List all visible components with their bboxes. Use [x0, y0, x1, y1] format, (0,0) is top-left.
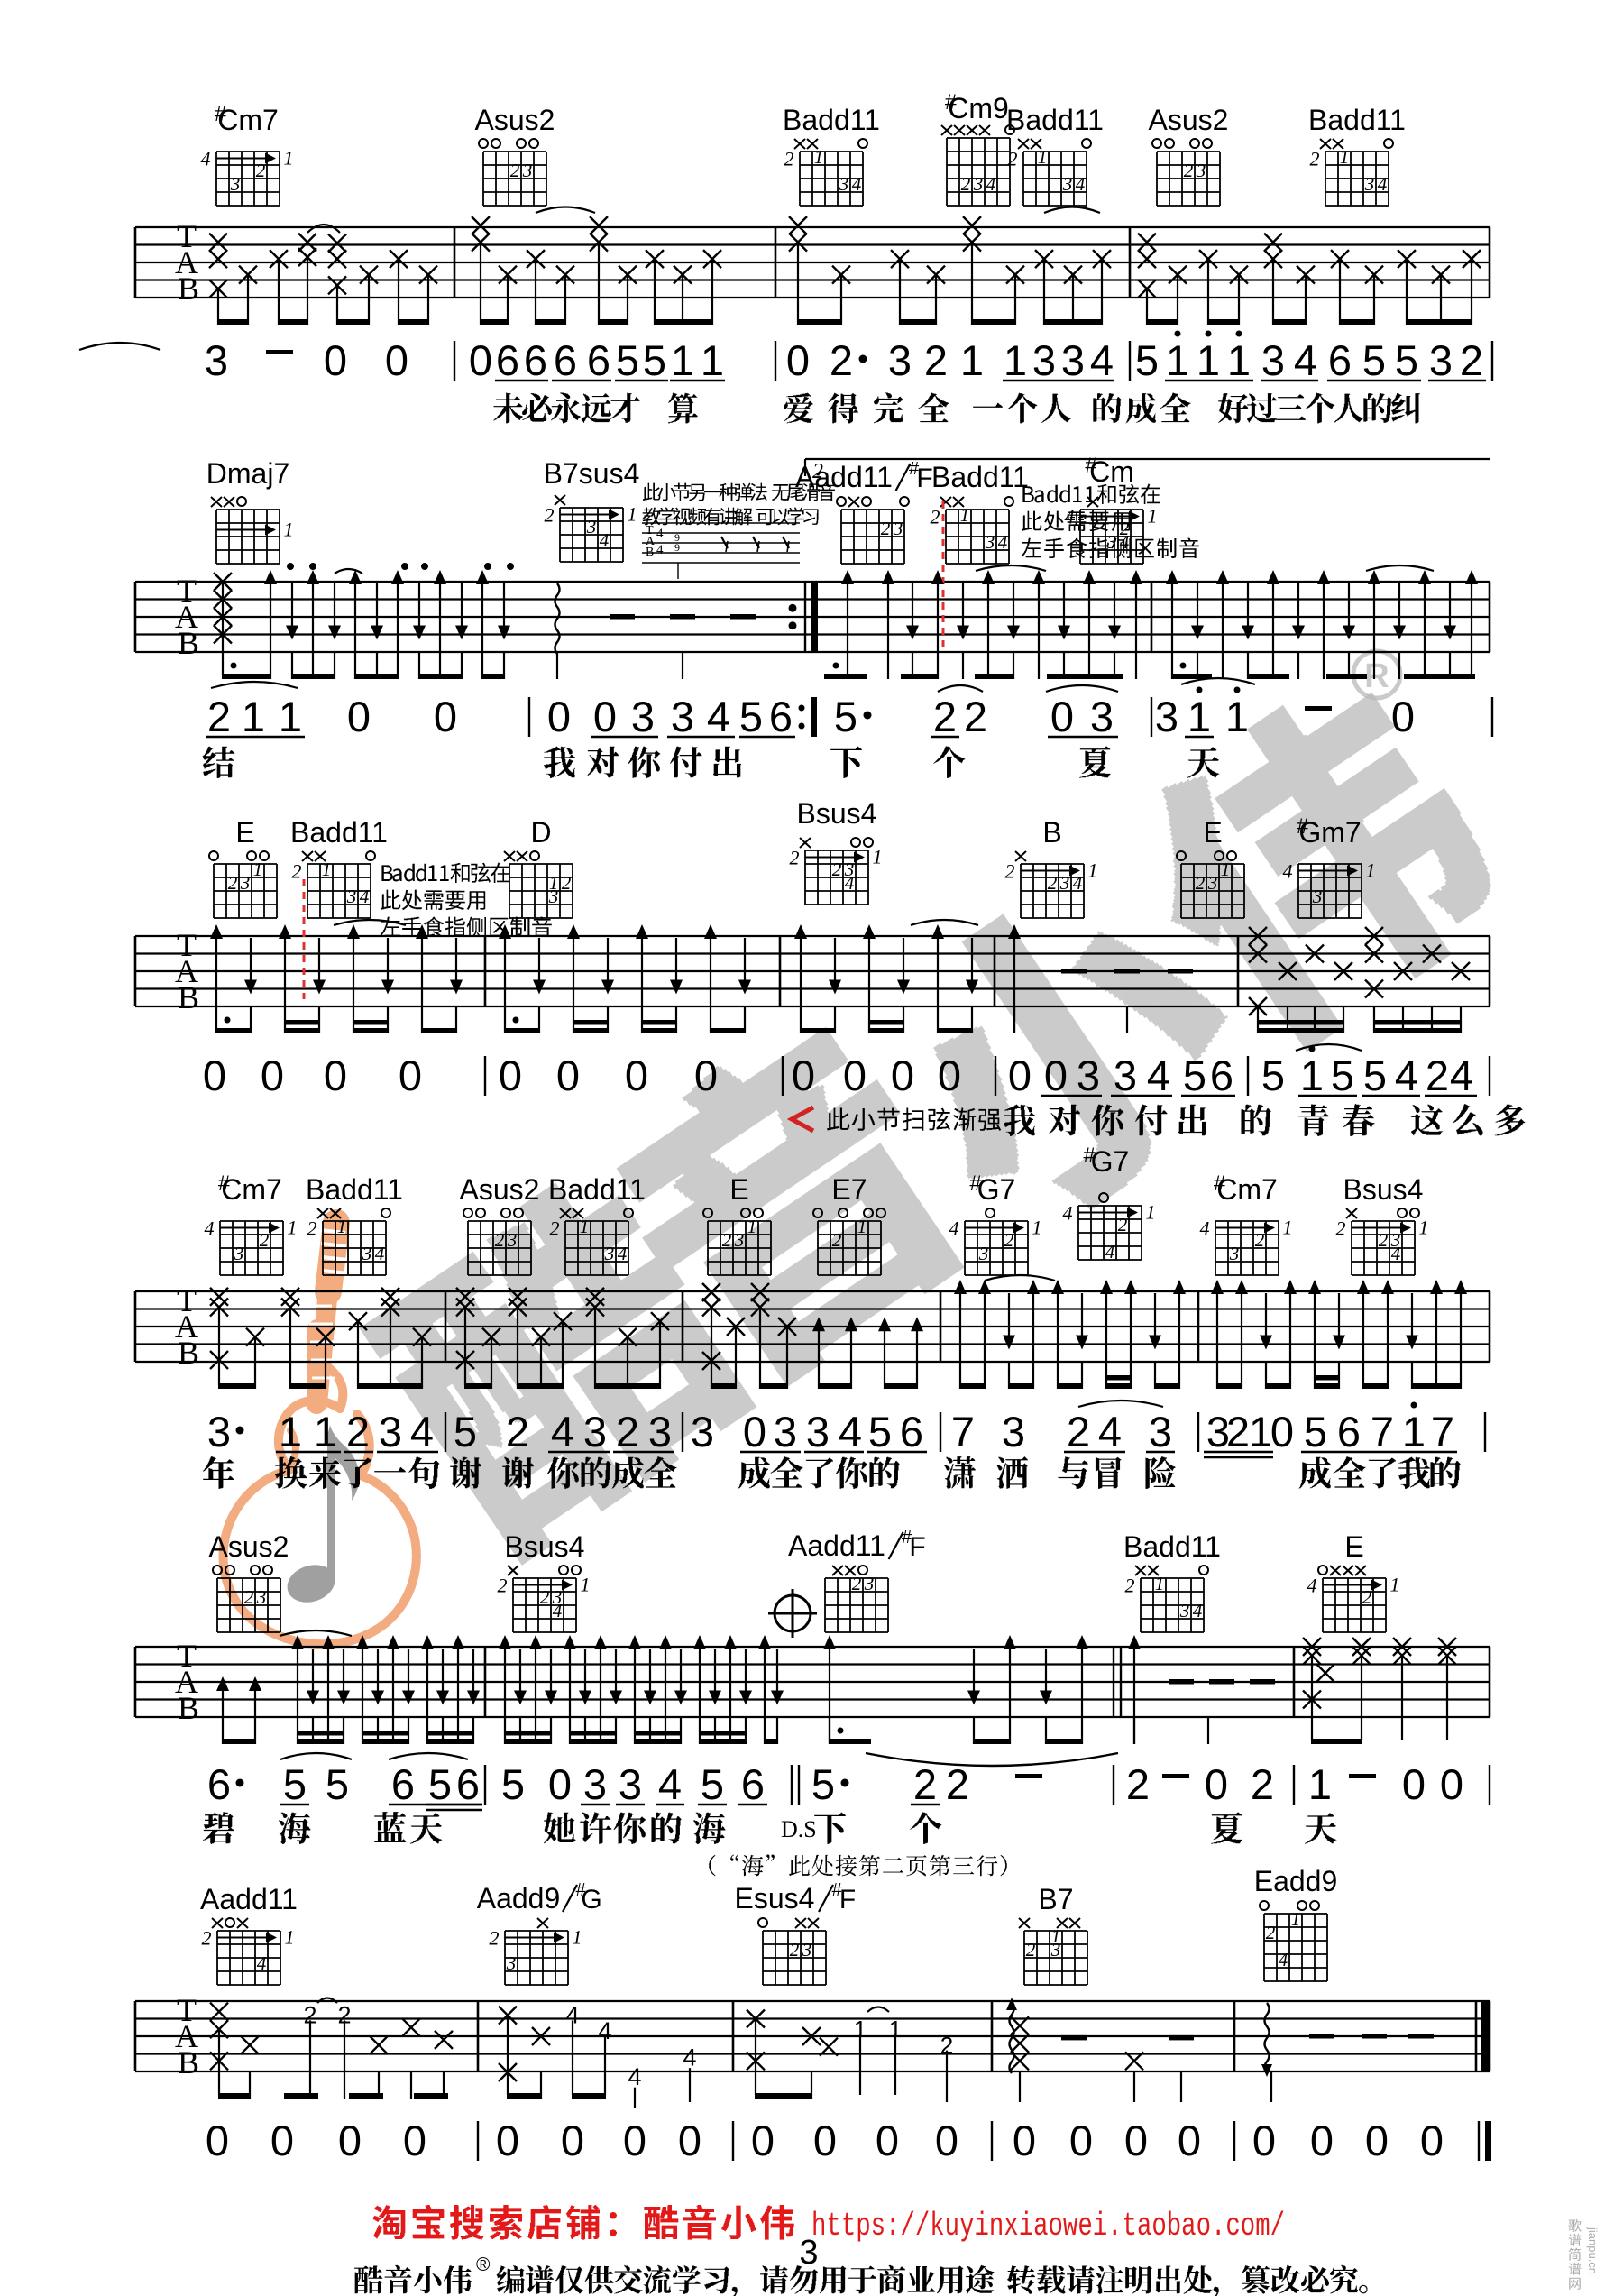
svg-text:1: 1	[1187, 693, 1211, 740]
svg-text:5: 5	[1363, 1052, 1387, 1099]
svg-text:2: 2	[228, 872, 238, 894]
svg-text:4: 4	[1283, 860, 1293, 883]
svg-text:3: 3	[619, 1760, 642, 1808]
svg-text:4: 4	[656, 543, 664, 557]
svg-text:Badd11: Badd11	[290, 816, 388, 849]
svg-text:4: 4	[1073, 872, 1083, 894]
svg-text:4: 4	[1063, 1202, 1073, 1225]
svg-text:4: 4	[201, 148, 211, 170]
svg-text:2: 2	[1008, 148, 1018, 170]
svg-text:2: 2	[1251, 1760, 1274, 1808]
svg-text:Esus4: Esus4	[735, 1882, 815, 1915]
svg-text:Badd11: Badd11	[548, 1173, 646, 1206]
svg-text:3: 3	[978, 1243, 989, 1264]
svg-text:3: 3	[1032, 336, 1056, 384]
svg-text:2: 2	[346, 1408, 370, 1456]
svg-text:B: B	[178, 1690, 199, 1726]
svg-text:2: 2	[1048, 872, 1058, 894]
svg-text:Badd11: Badd11	[1308, 104, 1406, 136]
svg-text:2: 2	[1005, 860, 1015, 883]
svg-text:3: 3	[1261, 336, 1285, 384]
svg-text:5: 5	[643, 336, 666, 384]
svg-text:3: 3	[1155, 693, 1178, 740]
svg-text:3: 3	[522, 160, 533, 181]
svg-text:5: 5	[1135, 336, 1159, 384]
svg-text:1: 1	[960, 336, 984, 384]
svg-text:1: 1	[873, 846, 883, 868]
svg-text:1: 1	[1221, 859, 1231, 880]
svg-text:Cm: Cm	[1089, 455, 1134, 488]
svg-text:4: 4	[1395, 1052, 1418, 1099]
svg-text:1: 1	[1032, 1217, 1042, 1239]
svg-text:2: 2	[1255, 1229, 1265, 1251]
svg-text:2: 2	[961, 173, 971, 195]
svg-text:2: 2	[1336, 1217, 1346, 1240]
svg-text:3: 3	[362, 1243, 372, 1264]
svg-text:4: 4	[553, 1600, 563, 1621]
svg-text:5: 5	[454, 1408, 477, 1456]
svg-text:0: 0	[1365, 2117, 1389, 2164]
svg-text:1: 1	[1402, 1408, 1426, 1456]
svg-text:0: 0	[593, 693, 617, 740]
svg-text:E: E	[235, 816, 254, 849]
svg-text:2: 2	[832, 859, 842, 880]
svg-text:4: 4	[618, 1243, 628, 1264]
svg-text:0: 0	[743, 1408, 766, 1456]
svg-text:1: 1	[1155, 1573, 1165, 1594]
svg-text:5: 5	[501, 1760, 525, 1808]
svg-text:3: 3	[973, 173, 984, 195]
svg-text:0: 0	[1044, 1052, 1068, 1099]
svg-text:Bsus4: Bsus4	[1343, 1173, 1424, 1206]
svg-text:B: B	[178, 625, 199, 661]
svg-text:3: 3	[1090, 693, 1114, 740]
svg-text:3: 3	[1114, 1052, 1137, 1099]
svg-text:4: 4	[1147, 1052, 1170, 1099]
svg-text:3: 3	[507, 1229, 518, 1251]
svg-text:5: 5	[701, 1760, 724, 1808]
svg-text:4: 4	[949, 1217, 959, 1240]
svg-text:4: 4	[1450, 1052, 1473, 1099]
svg-text:1: 1	[814, 146, 824, 168]
svg-text:0: 0	[625, 1052, 648, 1099]
svg-text:Asus2: Asus2	[1149, 104, 1229, 136]
svg-text:1: 1	[1038, 146, 1048, 168]
svg-text:F: F	[909, 1532, 925, 1562]
svg-text:0: 0	[1270, 1408, 1294, 1456]
svg-text:2: 2	[256, 160, 266, 181]
svg-text:2: 2	[1196, 872, 1206, 894]
svg-text:3: 3	[207, 1408, 231, 1456]
svg-text:4: 4	[360, 886, 370, 907]
svg-text:5: 5	[1395, 336, 1418, 384]
svg-text:4: 4	[658, 1760, 682, 1808]
svg-text:3: 3	[1077, 1052, 1100, 1099]
svg-text:2: 2	[1460, 336, 1483, 384]
svg-text:3: 3	[583, 1408, 607, 1456]
svg-text:0: 0	[1310, 2117, 1334, 2164]
svg-text:2: 2	[1379, 1229, 1389, 1251]
svg-text:1: 1	[573, 1926, 582, 1949]
svg-text:1: 1	[242, 693, 265, 740]
svg-text:5: 5	[739, 693, 763, 740]
svg-text:Badd11: Badd11	[783, 104, 880, 136]
svg-text:F: F	[839, 1885, 856, 1915]
svg-text:1: 1	[1225, 693, 1249, 740]
svg-text:Badd11: Badd11	[306, 1173, 403, 1206]
svg-text:5: 5	[1304, 1408, 1327, 1456]
svg-text:1: 1	[581, 1574, 591, 1596]
svg-text:4: 4	[1090, 336, 1114, 384]
svg-text:0: 0	[1420, 2117, 1444, 2164]
svg-text:D.S: D.S	[781, 1816, 817, 1842]
svg-text:3: 3	[604, 1243, 615, 1264]
svg-text:Dmaj7: Dmaj7	[206, 457, 289, 490]
svg-text:5: 5	[283, 1760, 307, 1808]
svg-text:3: 3	[734, 1229, 745, 1251]
svg-text:E: E	[1344, 1530, 1363, 1563]
svg-text:2: 2	[545, 504, 555, 527]
svg-text:Badd11: Badd11	[1123, 1530, 1221, 1563]
svg-text:1: 1	[1004, 336, 1027, 384]
svg-text:3: 3	[671, 693, 694, 740]
svg-text:https://kuyinxiaowei.taobao.co: https://kuyinxiaowei.taobao.com/	[811, 2208, 1285, 2245]
svg-text:7: 7	[951, 1408, 975, 1456]
svg-text:3: 3	[802, 1939, 812, 1961]
svg-text:1: 1	[1148, 505, 1158, 528]
svg-text:3: 3	[1050, 1939, 1061, 1961]
svg-text:0: 0	[935, 2117, 958, 2164]
svg-text:4: 4	[410, 1408, 434, 1456]
svg-text:0: 0	[385, 336, 408, 384]
svg-text:E: E	[729, 1173, 748, 1206]
svg-text:3: 3	[648, 1408, 672, 1456]
svg-text:0: 0	[403, 2117, 426, 2164]
svg-text:2: 2	[207, 693, 231, 740]
svg-text:3: 3	[691, 1408, 714, 1456]
svg-text:2: 2	[964, 693, 987, 740]
svg-text:2: 2	[832, 1229, 842, 1251]
svg-text:1: 1	[1088, 859, 1098, 882]
svg-text:0: 0	[1402, 1760, 1426, 1808]
svg-text:5: 5	[1331, 1052, 1354, 1099]
svg-text:2: 2	[1118, 1214, 1128, 1235]
svg-text:2: 2	[1067, 1408, 1090, 1456]
svg-text:3: 3	[506, 1952, 517, 1974]
svg-text:3: 3	[205, 336, 228, 384]
svg-text:Aadd9: Aadd9	[477, 1882, 561, 1915]
svg-text:2: 2	[924, 336, 948, 384]
svg-text:B: B	[178, 271, 199, 307]
svg-text:4: 4	[375, 1243, 385, 1264]
svg-text:Bsus4: Bsus4	[505, 1530, 585, 1563]
svg-text:0: 0	[1178, 2117, 1201, 2164]
svg-text:Badd11: Badd11	[1006, 104, 1104, 136]
svg-text:B: B	[178, 2044, 199, 2080]
svg-text:3: 3	[1149, 1408, 1172, 1456]
svg-text:0: 0	[338, 2117, 362, 2164]
svg-text:1: 1	[580, 1216, 590, 1237]
svg-text:3: 3	[1312, 886, 1323, 907]
svg-text:2: 2	[510, 160, 520, 181]
svg-text:1: 1	[1283, 1217, 1293, 1239]
svg-text:2: 2	[933, 693, 957, 740]
svg-text:Gm7: Gm7	[1298, 816, 1361, 849]
svg-text:0: 0	[469, 336, 492, 384]
svg-text:0: 0	[891, 1052, 914, 1099]
svg-text:1: 1	[253, 859, 263, 880]
svg-text:0: 0	[1069, 2117, 1093, 2164]
svg-text:1: 1	[279, 693, 302, 740]
svg-text:B: B	[1042, 816, 1061, 849]
svg-text:3: 3	[548, 886, 559, 907]
svg-text:7: 7	[1431, 1408, 1454, 1456]
svg-text:0: 0	[548, 1760, 572, 1808]
svg-text:0: 0	[792, 1052, 815, 1099]
svg-text:1: 1	[1249, 1408, 1272, 1456]
svg-text:0: 0	[324, 336, 347, 384]
svg-text:2: 2	[490, 1927, 500, 1950]
svg-text:2: 2	[616, 1408, 639, 1456]
svg-text:Cm7: Cm7	[1216, 1173, 1278, 1206]
svg-text:0: 0	[496, 2117, 519, 2164]
svg-text:2: 2	[292, 860, 302, 883]
svg-text:G: G	[581, 1885, 601, 1915]
svg-text:5: 5	[868, 1408, 892, 1456]
svg-text:0: 0	[261, 1052, 284, 1099]
svg-text:4: 4	[986, 173, 996, 195]
svg-text:4: 4	[1279, 1949, 1288, 1970]
svg-text:3: 3	[583, 1760, 607, 1808]
svg-text:4: 4	[1378, 173, 1388, 195]
svg-text:6: 6	[554, 336, 577, 384]
svg-text:Asus2: Asus2	[460, 1173, 540, 1206]
svg-text:2: 2	[931, 506, 940, 528]
svg-text:0: 0	[1252, 2117, 1276, 2164]
svg-text:3: 3	[1059, 872, 1070, 894]
svg-text:0: 0	[561, 2117, 584, 2164]
svg-text:0: 0	[938, 1052, 961, 1099]
svg-text:6: 6	[1337, 1408, 1361, 1456]
svg-text:2: 2	[790, 1939, 800, 1961]
svg-text:3: 3	[346, 886, 357, 907]
svg-text:2: 2	[260, 1229, 270, 1251]
svg-text:4: 4	[683, 2043, 696, 2071]
svg-text:0: 0	[399, 1052, 422, 1099]
svg-text:Bsus4: Bsus4	[797, 797, 877, 830]
svg-text:2: 2	[784, 148, 794, 170]
svg-text:1: 1	[1308, 1760, 1332, 1808]
svg-text:5: 5	[1183, 1052, 1206, 1099]
svg-text:3: 3	[888, 336, 912, 384]
svg-text:2: 2	[1362, 1586, 1372, 1608]
svg-text:0: 0	[347, 693, 371, 740]
svg-text:4: 4	[1307, 1575, 1317, 1597]
svg-text:1: 1	[701, 336, 724, 384]
svg-text:G7: G7	[977, 1173, 1016, 1206]
svg-text:1: 1	[1419, 1217, 1429, 1239]
svg-text:Asus2: Asus2	[475, 104, 555, 136]
svg-text:2: 2	[1266, 1922, 1276, 1943]
svg-text:6: 6	[456, 1760, 480, 1808]
svg-text:4: 4	[1105, 1241, 1115, 1263]
svg-text:B7: B7	[1038, 1883, 1073, 1915]
svg-text:1: 1	[960, 504, 970, 526]
svg-text:Eadd9: Eadd9	[1254, 1865, 1338, 1897]
svg-text:3: 3	[1364, 173, 1375, 195]
svg-text:1: 1	[284, 519, 294, 541]
svg-text:0: 0	[1124, 2117, 1148, 2164]
svg-text:3: 3	[1207, 872, 1218, 894]
svg-text:3: 3	[1429, 336, 1453, 384]
svg-text:4: 4	[628, 2063, 641, 2090]
svg-text:4: 4	[551, 1408, 574, 1456]
svg-text:0: 0	[203, 1052, 226, 1099]
svg-text:2: 2	[722, 1229, 732, 1251]
svg-text:F: F	[916, 464, 932, 493]
svg-text:Cm7: Cm7	[217, 104, 279, 136]
svg-text:4: 4	[707, 693, 730, 740]
svg-text:1: 1	[1390, 1574, 1400, 1596]
svg-text:4: 4	[600, 529, 610, 551]
svg-text:9: 9	[674, 541, 680, 554]
svg-text:2: 2	[1226, 1408, 1250, 1456]
svg-text:2: 2	[498, 1575, 508, 1597]
svg-text:1: 1	[1340, 146, 1350, 168]
svg-text:6: 6	[524, 336, 547, 384]
svg-text:2: 2	[881, 518, 891, 539]
svg-text:4: 4	[839, 1408, 862, 1456]
svg-text:6: 6	[900, 1408, 923, 1456]
svg-text:4: 4	[257, 1952, 267, 1974]
svg-text:2: 2	[202, 1927, 212, 1950]
svg-text:Aadd11: Aadd11	[788, 1529, 885, 1562]
svg-text:4: 4	[656, 527, 664, 541]
svg-text:0: 0	[547, 693, 571, 740]
svg-text:2: 2	[1004, 1229, 1014, 1251]
svg-text:3: 3	[893, 518, 903, 539]
svg-text:3: 3	[1179, 1600, 1190, 1621]
svg-text:1: 1	[322, 859, 332, 880]
svg-text:5: 5	[616, 336, 639, 384]
svg-text:2: 2	[244, 1586, 254, 1608]
svg-text:5: 5	[811, 1760, 835, 1808]
svg-text:5: 5	[428, 1760, 452, 1808]
svg-text:5: 5	[834, 693, 857, 740]
svg-text:4: 4	[205, 1217, 215, 1240]
svg-text:4: 4	[1098, 1408, 1122, 1456]
svg-text:2: 2	[1026, 1939, 1036, 1961]
svg-text:B: B	[178, 1335, 199, 1371]
svg-text:4: 4	[1193, 1600, 1203, 1621]
svg-text:6: 6	[769, 693, 793, 740]
svg-text:0: 0	[876, 2117, 899, 2164]
svg-text:2: 2	[852, 1573, 862, 1594]
svg-text:0: 0	[1205, 1760, 1228, 1808]
svg-text:0: 0	[1440, 1760, 1463, 1808]
svg-text:3: 3	[230, 173, 241, 195]
svg-text:1: 1	[1197, 336, 1220, 384]
svg-text:3: 3	[774, 1408, 797, 1456]
svg-text:2: 2	[307, 1217, 317, 1240]
svg-text:3: 3	[1229, 1243, 1240, 1264]
svg-text:B7sus4: B7sus4	[544, 457, 640, 490]
svg-text:Badd11: Badd11	[931, 461, 1029, 493]
svg-text:4: 4	[852, 173, 862, 195]
svg-text:3: 3	[1061, 336, 1085, 384]
svg-text:1: 1	[1166, 336, 1189, 384]
svg-text:3: 3	[256, 1586, 267, 1608]
svg-text:D: D	[530, 816, 551, 849]
svg-text:Cm9: Cm9	[948, 92, 1009, 124]
svg-text:2: 2	[830, 336, 853, 384]
svg-text:1: 1	[671, 336, 694, 384]
svg-text:4: 4	[1294, 336, 1317, 384]
svg-text:1: 1	[1146, 1201, 1156, 1224]
svg-text:1: 1	[279, 1408, 302, 1456]
svg-text:3: 3	[839, 173, 849, 195]
svg-text:2: 2	[1426, 1052, 1449, 1099]
svg-text:E7: E7	[831, 1173, 867, 1206]
svg-text:Aadd11: Aadd11	[200, 1883, 298, 1915]
svg-text:2: 2	[1126, 1760, 1150, 1808]
svg-text:2: 2	[540, 1586, 550, 1608]
svg-text:2: 2	[1125, 1575, 1135, 1597]
svg-text:0: 0	[623, 2117, 646, 2164]
svg-text:Asus2: Asus2	[209, 1530, 289, 1563]
svg-text:0: 0	[694, 1052, 718, 1099]
svg-text:3: 3	[1196, 160, 1206, 181]
svg-text:6: 6	[587, 336, 610, 384]
svg-text:3: 3	[799, 2234, 818, 2272]
svg-text:0: 0	[786, 336, 810, 384]
svg-text:G7: G7	[1091, 1145, 1130, 1178]
svg-text:2: 2	[790, 847, 800, 869]
svg-text:0: 0	[206, 2117, 229, 2164]
svg-text:0: 0	[1008, 1052, 1032, 1099]
svg-text:0: 0	[678, 2117, 701, 2164]
svg-text:0: 0	[843, 1052, 867, 1099]
svg-text:0: 0	[270, 2117, 294, 2164]
svg-text:0: 0	[1050, 693, 1074, 740]
svg-text:B: B	[178, 979, 199, 1015]
svg-text:3: 3	[240, 872, 251, 894]
svg-text:1: 1	[337, 1216, 347, 1237]
svg-text:3: 3	[1002, 1408, 1025, 1456]
svg-text:2: 2	[562, 872, 572, 894]
svg-text:4: 4	[1391, 1243, 1401, 1264]
svg-text:5: 5	[1261, 1052, 1285, 1099]
svg-text:6: 6	[1210, 1052, 1233, 1099]
svg-text:B: B	[646, 546, 654, 559]
svg-text:3: 3	[234, 1243, 244, 1264]
svg-text:5: 5	[326, 1760, 349, 1808]
svg-text:6: 6	[741, 1760, 765, 1808]
svg-text:6: 6	[496, 336, 519, 384]
svg-text:1: 1	[857, 1216, 867, 1237]
svg-text:E: E	[1203, 816, 1222, 849]
svg-text:0: 0	[813, 2117, 837, 2164]
svg-text:0: 0	[434, 693, 457, 740]
svg-text:0: 0	[1013, 2117, 1036, 2164]
svg-text:0: 0	[324, 1052, 347, 1099]
svg-text:3: 3	[1062, 173, 1073, 195]
svg-text:1: 1	[628, 503, 637, 526]
svg-text:2: 2	[913, 1760, 937, 1808]
svg-text:6: 6	[391, 1760, 415, 1808]
svg-text:®: ®	[476, 2255, 491, 2275]
svg-text:1: 1	[288, 1217, 298, 1239]
